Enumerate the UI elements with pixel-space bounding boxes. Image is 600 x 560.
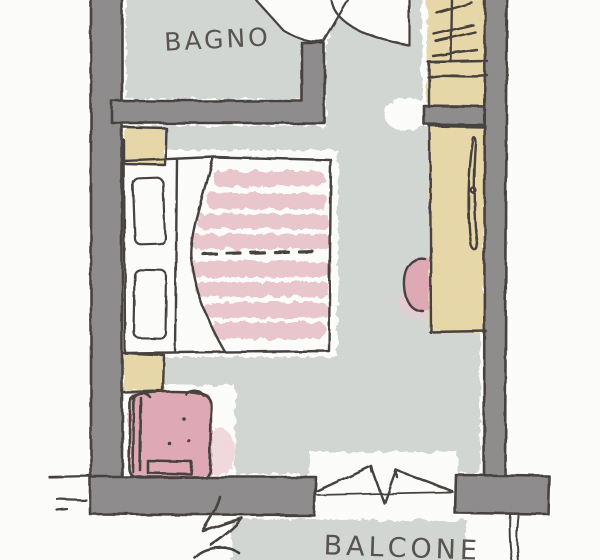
floor-plan-sketch: BAGNO BALCONE [0,0,600,560]
floor-plan-canvas: BAGNO BALCONE [0,0,600,560]
plan-root: BAGNO BALCONE [0,0,600,560]
paper-grain-overlay [0,0,600,560]
